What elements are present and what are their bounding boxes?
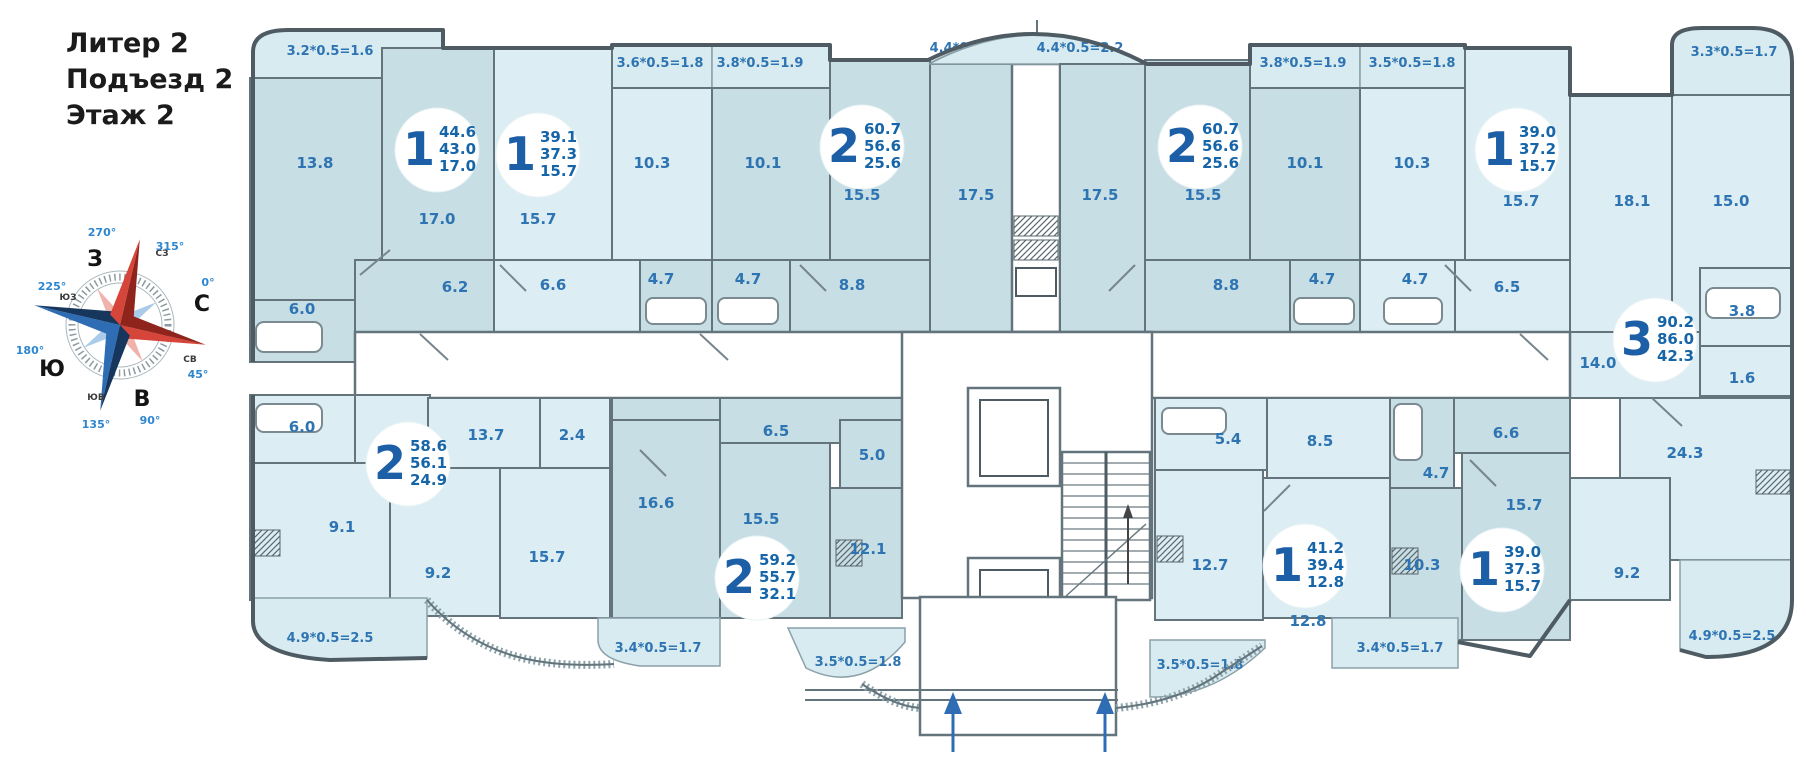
bathtub-icon <box>1394 404 1422 460</box>
room-area-label: 10.3 <box>1403 556 1440 574</box>
badge-area-total: 90.2 <box>1657 313 1694 331</box>
apartment-badge: 3 90.2 86.0 42.3 <box>1613 298 1697 382</box>
badge-area-total: 60.7 <box>1202 120 1239 138</box>
badge-area-living: 15.7 <box>1504 577 1541 595</box>
room-area-label: 5.4 <box>1215 430 1242 448</box>
vent-hatch <box>1756 470 1790 494</box>
badge-area-total: 59.2 <box>759 551 796 569</box>
compass-deg-135: 135° <box>82 418 110 431</box>
compass-north-label: С <box>194 292 210 317</box>
title-line-1: Литер 2 <box>66 28 189 59</box>
compass-deg-0: 0° <box>201 276 214 289</box>
badge-area-living: 12.8 <box>1307 573 1344 591</box>
bathtub-icon <box>256 322 322 352</box>
badge-room-count: 3 <box>1621 312 1653 366</box>
room <box>612 420 720 618</box>
apartment-badge: 2 58.6 56.1 24.9 <box>366 422 450 506</box>
room-area-label: 6.6 <box>540 276 567 294</box>
badge-area-net: 37.3 <box>540 145 577 163</box>
badge-area-total: 44.6 <box>439 123 476 141</box>
badge-area-total: 41.2 <box>1307 539 1344 557</box>
room-area-label: 6.5 <box>1494 278 1521 296</box>
badge-area-living: 32.1 <box>759 585 796 603</box>
room-area-label: 5.0 <box>859 446 886 464</box>
floor-plan-canvas: Литер 2 Подъезд 2 Этаж 2 З С Ю В СЗ СВ Ю… <box>0 0 1806 758</box>
compass-deg-45: 45° <box>188 368 209 381</box>
apartment-8: 6.5 16.6 15.5 5.0 12.1 3.4*0.5=1.7 3.5*0… <box>598 398 905 677</box>
vent-hatch <box>1014 240 1058 260</box>
compass-deg-225: 225° <box>38 280 66 293</box>
balcony-area-label: 3.5*0.5=1.8 <box>815 655 902 670</box>
room-area-label: 6.5 <box>763 422 790 440</box>
room <box>500 468 610 618</box>
room-area-label: 8.8 <box>1213 276 1240 294</box>
badge-area-living: 15.7 <box>1519 157 1556 175</box>
balcony-area-label: 4.9*0.5=2.5 <box>1689 629 1776 644</box>
room-area-label: 6.0 <box>289 300 316 318</box>
compass-deg-270: 270° <box>88 226 116 239</box>
badge-area-net: 37.2 <box>1519 140 1556 158</box>
room-area-label: 12.8 <box>1289 612 1326 630</box>
apartment-badge: 2 59.2 55.7 32.1 <box>715 536 799 620</box>
badge-area-net: 43.0 <box>439 140 476 158</box>
room <box>790 260 930 332</box>
badge-area-net: 37.3 <box>1504 560 1541 578</box>
apartment-badge: 1 44.6 43.0 17.0 <box>395 108 479 192</box>
apartment-2: 3.6*0.5=1.8 15.7 10.3 6.6 4.7 1 39.1 37.… <box>494 45 712 332</box>
badge-area-total: 58.6 <box>410 437 447 455</box>
apartment-badge: 1 39.0 37.2 15.7 <box>1475 108 1559 192</box>
apartment-badge: 1 39.0 37.3 15.7 <box>1460 528 1544 612</box>
badge-room-count: 2 <box>1166 119 1198 173</box>
badge-room-count: 1 <box>403 122 435 176</box>
compass-south-label: Ю <box>39 357 65 382</box>
compass-deg-315: 315° <box>156 240 184 253</box>
badge-area-living: 24.9 <box>410 471 447 489</box>
compass-rose: З С Ю В СЗ СВ ЮВ ЮЗ 270° 315° 0° 45° 90°… <box>14 219 225 431</box>
room-area-label: 24.3 <box>1666 444 1703 462</box>
room-area-label: 6.0 <box>289 418 316 436</box>
balcony-area-label: 3.8*0.5=1.9 <box>1260 56 1347 71</box>
balcony-area-label: 3.8*0.5=1.9 <box>717 56 804 71</box>
room-area-label: 17.5 <box>957 186 994 204</box>
room-area-label: 3.8 <box>1729 302 1756 320</box>
badge-area-total: 39.0 <box>1519 123 1556 141</box>
compass-deg-90: 90° <box>140 414 161 427</box>
badge-area-total: 39.0 <box>1504 543 1541 561</box>
badge-room-count: 2 <box>723 550 755 604</box>
room-area-label: 10.1 <box>1286 154 1323 172</box>
title-line-3: Этаж 2 <box>66 100 175 131</box>
badge-room-count: 1 <box>504 127 536 181</box>
badge-area-net: 55.7 <box>759 568 796 586</box>
room-area-label: 12.1 <box>849 540 886 558</box>
vent-shaft-core <box>1012 64 1060 332</box>
room-area-label: 15.7 <box>528 548 565 566</box>
compass-east-label: В <box>134 387 151 412</box>
balcony-area-label: 3.5*0.5=1.8 <box>1369 56 1456 71</box>
badge-room-count: 2 <box>374 436 406 490</box>
badge-area-total: 60.7 <box>864 120 901 138</box>
badge-room-count: 1 <box>1468 542 1500 596</box>
room <box>612 88 712 260</box>
room-area-label: 9.2 <box>1614 564 1641 582</box>
room-area-label: 8.5 <box>1307 432 1334 450</box>
vent-hatch <box>254 530 280 556</box>
room-area-label: 13.8 <box>296 154 333 172</box>
staircase <box>1062 452 1150 600</box>
bathtub-icon <box>646 298 706 324</box>
room-area-label: 10.1 <box>744 154 781 172</box>
compass-west-label: З <box>87 247 103 272</box>
room-area-label: 17.5 <box>1081 186 1118 204</box>
vent-hatch <box>1157 536 1183 562</box>
room <box>1250 88 1360 260</box>
floor-plan-page: Литер 2 Подъезд 2 Этаж 2 З С Ю В СЗ СВ Ю… <box>0 0 1806 758</box>
room-area-label: 10.3 <box>633 154 670 172</box>
balcony-area-label: 3.6*0.5=1.8 <box>617 56 704 71</box>
room <box>1360 88 1465 260</box>
elevator-shaft <box>968 388 1060 486</box>
room-area-label: 4.7 <box>735 270 762 288</box>
room-area-label: 6.6 <box>1493 424 1520 442</box>
room-area-label: 2.4 <box>559 426 586 444</box>
shaft <box>1012 64 1060 332</box>
badge-area-living: 25.6 <box>864 154 901 172</box>
room-area-label: 8.8 <box>839 276 866 294</box>
room-area-label: 16.6 <box>637 494 674 512</box>
room-area-label: 17.0 <box>418 210 455 228</box>
room <box>1455 260 1570 332</box>
badge-room-count: 2 <box>828 119 860 173</box>
balcony-area-label: 3.3*0.5=1.7 <box>1691 45 1778 60</box>
room-area-label: 15.7 <box>519 210 556 228</box>
room-area-label: 9.2 <box>425 564 452 582</box>
room-area-label: 9.1 <box>329 518 356 536</box>
room-area-label: 4.7 <box>1402 270 1429 288</box>
bathtub-icon <box>1384 298 1442 324</box>
vent-hatch <box>1014 216 1058 236</box>
room-area-label: 6.2 <box>442 278 469 296</box>
balcony-area-label: 3.4*0.5=1.7 <box>615 641 702 656</box>
curved-bay <box>862 684 920 708</box>
room-area-label: 13.7 <box>467 426 504 444</box>
compass-se-label: ЮВ <box>87 393 105 403</box>
badge-area-living: 17.0 <box>439 157 476 175</box>
room-area-label: 15.7 <box>1502 192 1539 210</box>
badge-area-net: 56.6 <box>864 137 901 155</box>
plan-title: Литер 2 Подъезд 2 Этаж 2 <box>66 28 233 131</box>
apartment-6: 3.3*0.5=1.7 4.9*0.5=2.5 18.1 15.0 3.8 14… <box>1570 28 1792 657</box>
bathtub-icon <box>1294 298 1354 324</box>
balcony-area-label: 3.4*0.5=1.7 <box>1357 641 1444 656</box>
apartment-5: 3.5*0.5=1.8 10.3 15.7 4.7 6.5 1 39.0 37.… <box>1360 45 1570 332</box>
entrance-vestibule <box>920 597 1116 735</box>
apartment-badge: 2 60.7 56.6 25.6 <box>820 105 904 189</box>
room-area-label: 15.5 <box>742 510 779 528</box>
room <box>612 398 720 420</box>
compass-deg-180: 180° <box>16 344 44 357</box>
compass-sw-label: ЮЗ <box>60 293 77 303</box>
room-area-label: 15.7 <box>1505 496 1542 514</box>
badge-area-net: 56.1 <box>410 454 447 472</box>
badge-area-living: 25.6 <box>1202 154 1239 172</box>
room <box>712 88 830 260</box>
apartment-badge: 1 39.1 37.3 15.7 <box>496 113 580 197</box>
room <box>1145 260 1290 332</box>
room-area-label: 4.7 <box>648 270 675 288</box>
room-area-label: 4.7 <box>1309 270 1336 288</box>
bathtub-icon <box>718 298 778 324</box>
balcony <box>1672 28 1792 95</box>
compass-ne-label: СВ <box>183 355 197 365</box>
badge-area-net: 86.0 <box>1657 330 1694 348</box>
balcony-area-label: 3.2*0.5=1.6 <box>287 44 374 59</box>
room <box>1570 95 1672 332</box>
room-area-label: 4.7 <box>1423 464 1450 482</box>
room-area-label: 1.6 <box>1729 369 1756 387</box>
badge-area-net: 56.6 <box>1202 137 1239 155</box>
balcony-area-label: 4.9*0.5=2.5 <box>287 631 374 646</box>
title-line-2: Подъезд 2 <box>66 64 233 95</box>
apartment-badge: 2 60.7 56.6 25.6 <box>1158 105 1242 189</box>
badge-area-total: 39.1 <box>540 128 577 146</box>
room-area-label: 12.7 <box>1191 556 1228 574</box>
apartment-badge: 1 41.2 39.4 12.8 <box>1263 524 1347 608</box>
room-area-label: 14.0 <box>1579 354 1616 372</box>
badge-room-count: 1 <box>1271 538 1303 592</box>
room-area-label: 15.0 <box>1712 192 1749 210</box>
compass-star <box>14 219 225 430</box>
badge-area-net: 39.4 <box>1307 556 1344 574</box>
room-area-label: 10.3 <box>1393 154 1430 172</box>
badge-area-living: 15.7 <box>540 162 577 180</box>
badge-room-count: 1 <box>1483 122 1515 176</box>
apartment-7: 6.0 13.7 2.4 9.1 9.2 15.7 4.9*0.5=2.5 2 … <box>250 395 610 660</box>
room-area-label: 18.1 <box>1613 192 1650 210</box>
curved-bay-hatch <box>862 684 920 708</box>
badge-area-living: 42.3 <box>1657 347 1694 365</box>
